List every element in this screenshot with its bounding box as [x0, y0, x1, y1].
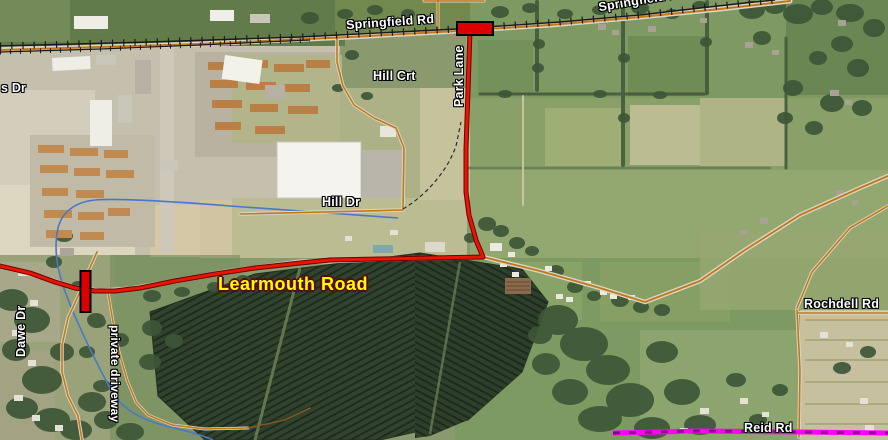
map-canvas	[0, 0, 888, 440]
label-reid-rd: Reid Rd	[744, 421, 793, 435]
label-road-partial-left: s Dr	[1, 81, 26, 95]
label-hill-dr: Hill Dr	[322, 195, 360, 209]
closure-marker-learmouth-west	[81, 271, 91, 312]
label-dawe-dr: Dawe Dr	[14, 306, 28, 357]
label-park-lane: Park Lane	[452, 45, 466, 107]
label-private-driveway: private driveway	[108, 325, 122, 422]
aerial-map[interactable]: s Dr Springfield Rd Springfield Rd Hill …	[0, 0, 888, 440]
label-hill-crt: Hill Crt	[373, 69, 416, 83]
label-rochdell-rd: Rochdell Rd	[804, 297, 879, 311]
closure-marker-springfield-parklane	[457, 22, 493, 35]
label-learmouth-road: Learmouth Road	[218, 274, 368, 295]
